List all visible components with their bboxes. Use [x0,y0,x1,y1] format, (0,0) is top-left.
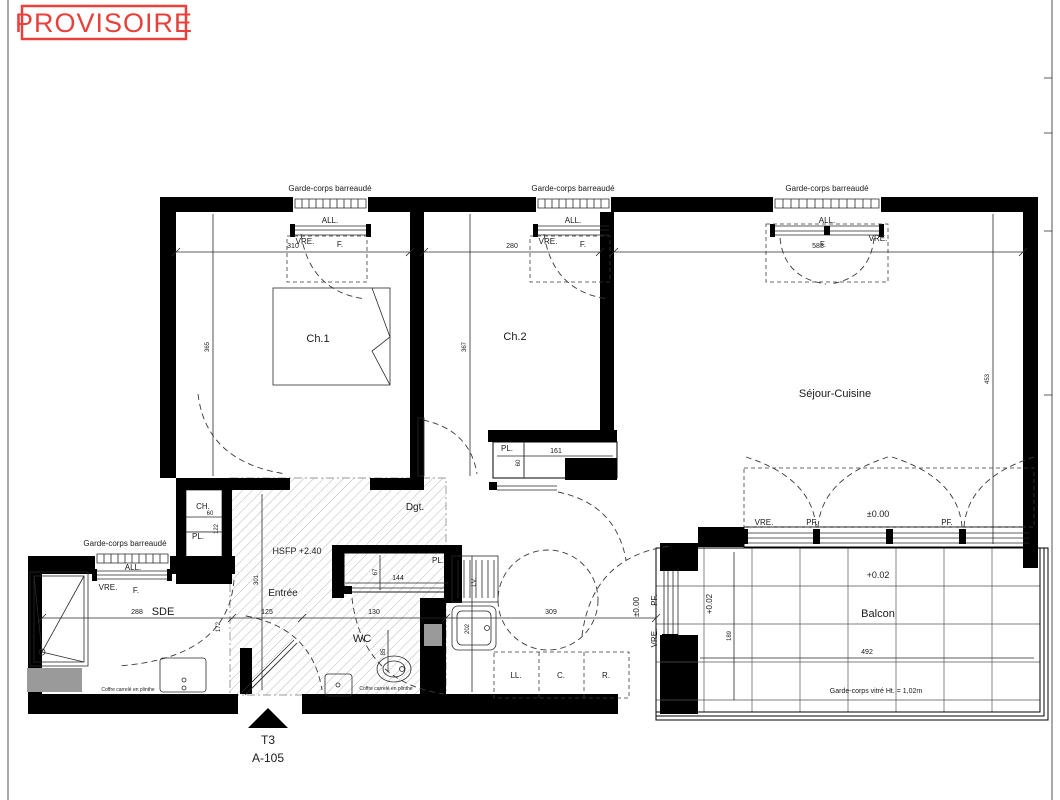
balcony-window-posts [741,529,1036,544]
dim-ch2-h: 367 [462,341,468,352]
room-ch2: Ch.2 [503,331,526,343]
balcony-level-side: +0.02 [705,593,714,614]
room-balcon: Balcon [861,608,895,620]
kitchen-door-frame [664,568,678,636]
closet-pl-left-label: PL. [192,532,204,541]
window-tag-1: F. [337,240,343,249]
labels: Garde-corps barreaudé Garde-corps barrea… [83,184,991,765]
appliance-washer: LL. [510,671,521,680]
dim-sde-w: 288 [131,609,143,616]
room-dgt: Dgt. [406,502,424,513]
floor-plan-svg: PROVISOIRE [0,0,1060,800]
kitchen-door-glazing [668,570,673,634]
dim-hall-h: 301 [254,574,260,585]
appliance-dishwasher: LV. [471,577,478,586]
dim-ch1-w: 310 [287,243,299,250]
level-balcony: +0.02 [867,570,890,580]
walls [28,197,1038,714]
room-wc: WC [353,633,371,645]
sill-tag-1: ALL. [322,216,338,225]
dim-ch2-w: 280 [506,243,518,250]
appliance-cooker: C. [557,671,565,680]
bed [273,288,390,385]
dim-sde-d: 172 [216,621,222,632]
unit-lot: A-105 [252,751,284,765]
sill-tag-3: ALL. [819,216,835,225]
kitchen-door-caps [662,563,678,640]
dim-entree-w: 125 [261,609,273,616]
unit-type: T3 [261,733,275,747]
room-ch1: Ch.1 [306,333,329,345]
level-zero: ±0.00 [867,509,889,519]
tiled-box-note-1: Coffre carrelé en plinthe [101,687,154,693]
closet-pl-ch2-label: PL. [501,444,513,453]
dim-pl-wc-w: 144 [392,575,404,582]
shutter-tag-2: VRE. [539,237,558,246]
kitchen-balcony-door [662,563,678,640]
sill-tag-4: ALL. [125,563,141,572]
balcony-door-swings [746,457,1034,527]
dim-ch-w: 60 [207,511,214,517]
balcony [656,457,1048,720]
sde-basin-tap-1 [182,678,186,682]
window-tag-4: F. [133,586,139,595]
dim-wc-w: 130 [368,609,380,616]
entrance-arrow [248,708,288,728]
dim-sejour-w: 583 [812,243,824,250]
room-sde: SDE [152,606,175,618]
room-entree: Entrée [268,588,298,599]
closet-ch-label: CH. [196,502,210,511]
guard-rail-label-1: Garde-corps barreaudé [288,184,372,193]
dim-pl-ch2-d: 60 [516,459,522,466]
sill-tag-2: ALL. [565,216,581,225]
kitchen-door-level-zero: ±0.00 [632,596,641,617]
balcony-pf-tag-2: PF. [941,518,953,527]
dim-balcon-d: 189 [727,630,733,641]
shutter-tag-4: VRE. [99,583,118,592]
shutter-tag-3: VRE. [869,234,888,243]
glass-guard-note: Garde-corps vitré Ht. = 1,02m [830,688,923,695]
ceiling-height: HSFP +2.40 [272,546,321,556]
closet-pl-wc-label: PL. [432,556,444,565]
dim-kitchen-w: 309 [545,609,557,616]
dim-sejour-h: 453 [985,373,991,384]
kitchen-door-pf-tag: PF. [650,594,659,606]
guard-rail-label-4: Garde-corps barreaudé [83,539,167,548]
sde-washbasin [160,658,206,692]
dim-pl-wc-d: 67 [373,568,379,575]
provisional-stamp: PROVISOIRE [15,6,193,39]
guard-rail-label-2: Garde-corps barreaudé [531,184,615,193]
kitchen-sink-tap [485,626,490,631]
balcony-shutter-tag: VRE. [755,518,774,527]
dim-ch1-h: 365 [205,341,211,352]
tiled-box-note-2: Coffre carrelé en plinthe [359,686,412,692]
dim-wc-d: 85 [381,648,387,655]
room-sejour: Séjour-Cuisine [799,388,871,400]
kitchen-sink-inner [457,611,491,645]
guard-rail-label-3: Garde-corps barreaudé [785,184,869,193]
stamp-label: PROVISOIRE [15,8,193,38]
dim-ch-d: 122 [214,523,220,534]
dim-balcon-w: 492 [861,649,873,656]
drawing-sheet: PROVISOIRE [0,0,1060,800]
dim-pl-ch2-w: 161 [550,448,562,455]
appliance-fridge: R. [602,671,610,680]
kitchen-door-shutter-tag: VRE. [650,629,659,648]
kitchen-swing-circle [498,550,598,650]
balcony-pf-tag-1: PF. [806,518,818,527]
sde-basin-tap-2 [182,686,186,690]
dim-kitchen-d: 202 [465,623,471,634]
window-tag-2: F. [580,240,586,249]
dimension-lines [38,214,1034,700]
bed-cover-fold [372,288,390,385]
